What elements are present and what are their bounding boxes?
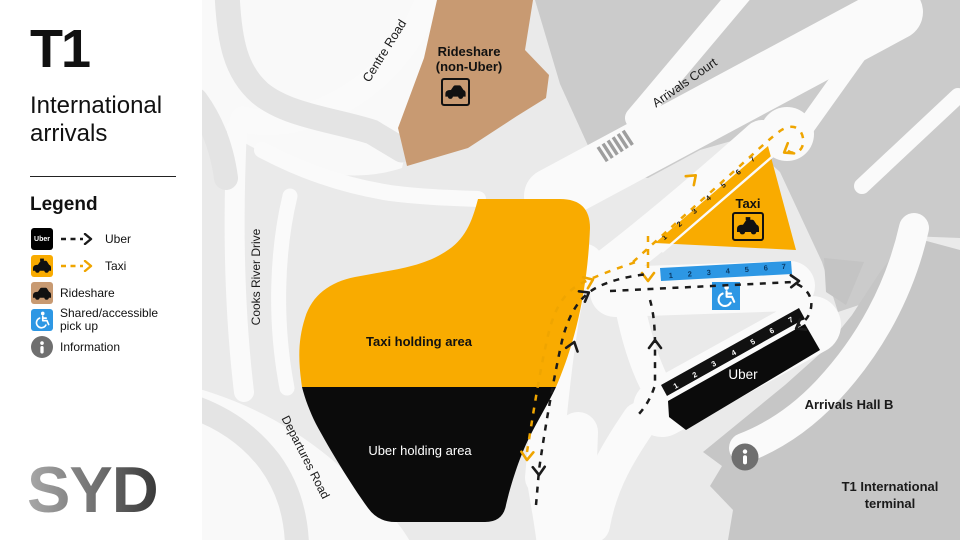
legend-label-information: Information [60,341,120,354]
airport-pickup-map: Rideshare (non-Uber) Taxi holding area U… [0,0,960,540]
information-icon [732,444,759,471]
taxi-holding-label: Taxi holding area [366,334,473,349]
sidebar: T1 International arrivals Legend Uber Ub… [0,0,202,540]
taxi-icon [31,255,53,277]
legend-label-uber: Uber [105,233,131,246]
taxi-rank-label: Taxi [735,196,760,211]
legend-item-information: Information [31,336,158,358]
arrivals-hall-label: Arrivals Hall B [805,397,894,412]
cooks-river-drive-label: Cooks River Drive [249,228,263,325]
page-title-line2: arrivals [30,120,162,148]
information-legend-icon [31,336,53,358]
taxi-route-arrow-icon [60,260,98,272]
legend-label-rideshare: Rideshare [60,287,115,300]
uber-holding-label: Uber holding area [368,443,472,458]
legend-label-accessible-line2: pick up [60,320,158,333]
svg-text:5: 5 [744,265,749,274]
legend-item-uber: Uber Uber [31,228,158,250]
svg-text:7: 7 [781,262,786,271]
accessible-legend-icon [31,309,53,331]
terminal-code: T1 [30,18,89,80]
legend-label-taxi: Taxi [105,260,126,273]
uber-route-arrow-icon [60,233,98,245]
legend-item-accessible: Shared/accessible pick up [31,309,158,331]
svg-text:2: 2 [687,269,692,278]
svg-text:6: 6 [763,263,768,272]
page-title: International arrivals [30,92,162,149]
legend-item-rideshare: Rideshare [31,282,158,304]
svg-text:1: 1 [668,271,673,280]
legend-item-taxi: Taxi [31,255,158,277]
svg-text:3: 3 [706,268,711,277]
rideshare-label-line2: (non-Uber) [436,59,502,74]
rideshare-icon [31,282,53,304]
terminal-label-line1: T1 International [842,479,939,494]
uber-badge-icon: Uber [31,228,53,250]
rideshare-label-line1: Rideshare [438,44,501,59]
airport-code: SYD [27,452,158,527]
rideshare-car-icon [442,79,469,105]
page-title-line1: International [30,92,162,120]
terminal-label-line2: terminal [865,496,916,511]
legend-label-accessible: Shared/accessible pick up [60,307,158,332]
uber-rank-label: Uber [728,367,758,382]
taxi-rank-icon [733,213,763,240]
divider [30,176,176,177]
legend-title: Legend [30,194,98,216]
legend: Uber Uber Taxi Rideshare [31,228,158,363]
